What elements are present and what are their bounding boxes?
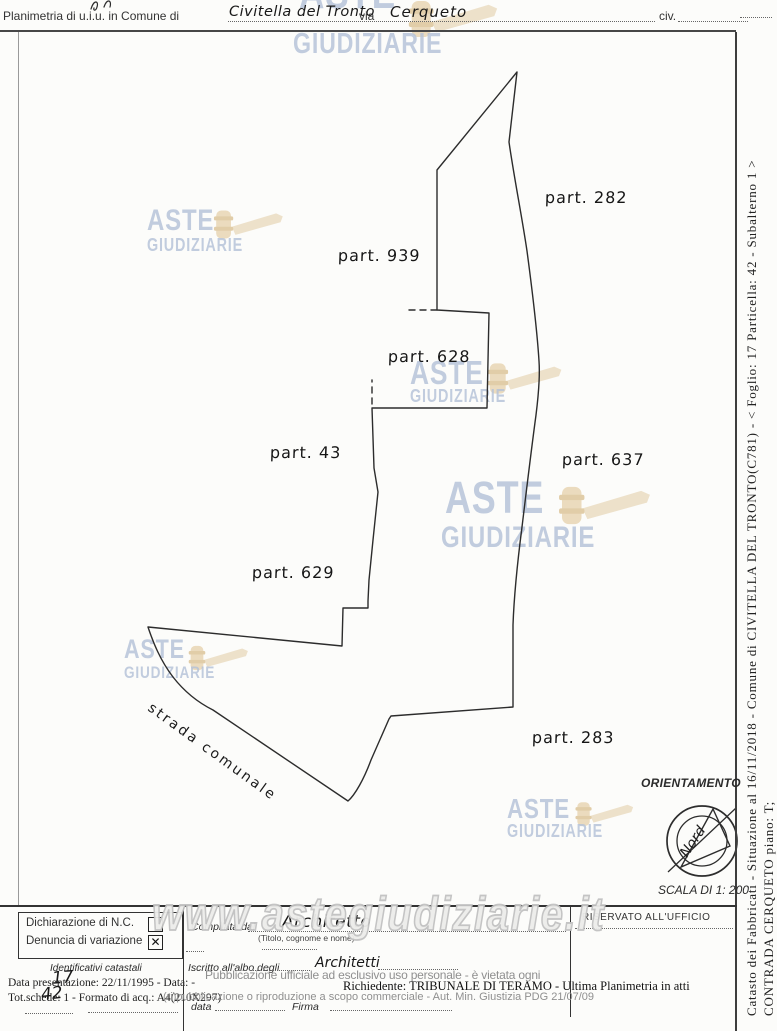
header-rule [0, 30, 736, 32]
parcel-boundary-path [148, 72, 539, 801]
denuncia-variazione-label: Denuncia di variazione [26, 935, 142, 947]
compass-icon: Nord [667, 806, 737, 876]
form-dotted-rule [330, 1010, 452, 1011]
parcel-label-628: part. 628 [388, 347, 471, 366]
site-url-watermark: www.astegiudiziarie.it [152, 886, 605, 941]
form-dotted-rule [88, 1012, 178, 1013]
parcel-label-282: part. 282 [545, 188, 628, 207]
scale-label: SCALA DI 1: 200 [658, 883, 749, 897]
header-title-label: Planimetria di u.i.u. in Comune di [3, 9, 179, 23]
parcel-label-43: part. 43 [270, 443, 342, 462]
form-dotted-rule [215, 1010, 285, 1011]
parcel-label-637: part. 637 [562, 450, 645, 469]
scanned-cadastral-plan-sheet: ASTE GIUDIZIARIE ASTE GIUDIZIARIE ASTE G… [0, 0, 777, 1031]
civ-label: civ. [659, 9, 676, 23]
form-dotted-rule [262, 949, 317, 950]
header-dotted-rule [228, 21, 655, 22]
sheet-border-right [735, 32, 737, 1031]
parcel-label-283: part. 283 [532, 728, 615, 747]
side-text-catasto: Catasto dei Fabbricati - Situazione al 1… [744, 160, 760, 1016]
orientation-label: ORIENTAMENTO [641, 776, 741, 790]
form-dotted-rule [25, 1013, 73, 1014]
legal-pub-line2: (ri)pubblicazione o riproduzione a scopo… [163, 991, 594, 1003]
header-dotted-rule-edge [740, 17, 772, 18]
data-presentazione-line: Data presentazione: 22/11/1995 - Data: - [8, 977, 195, 989]
compass-north-label: Nord [677, 823, 709, 860]
parcel-label-939: part. 939 [338, 246, 421, 265]
side-text-contrada: CONTRADA CERQUETO piano: T; [761, 801, 777, 1016]
parcel-plan-drawing: Nord [0, 0, 777, 1031]
via-handwritten-value: Cerqueto [390, 3, 467, 21]
parcel-label-629: part. 629 [252, 563, 335, 582]
sheet-border-left [18, 32, 19, 905]
dichiarazione-nc-label: Dichiarazione di N.C. [26, 917, 134, 929]
header-dotted-rule-civ [678, 21, 748, 22]
form-dotted-rule [186, 951, 204, 952]
comune-handwritten-value: Civitella del Tronto [229, 4, 375, 20]
